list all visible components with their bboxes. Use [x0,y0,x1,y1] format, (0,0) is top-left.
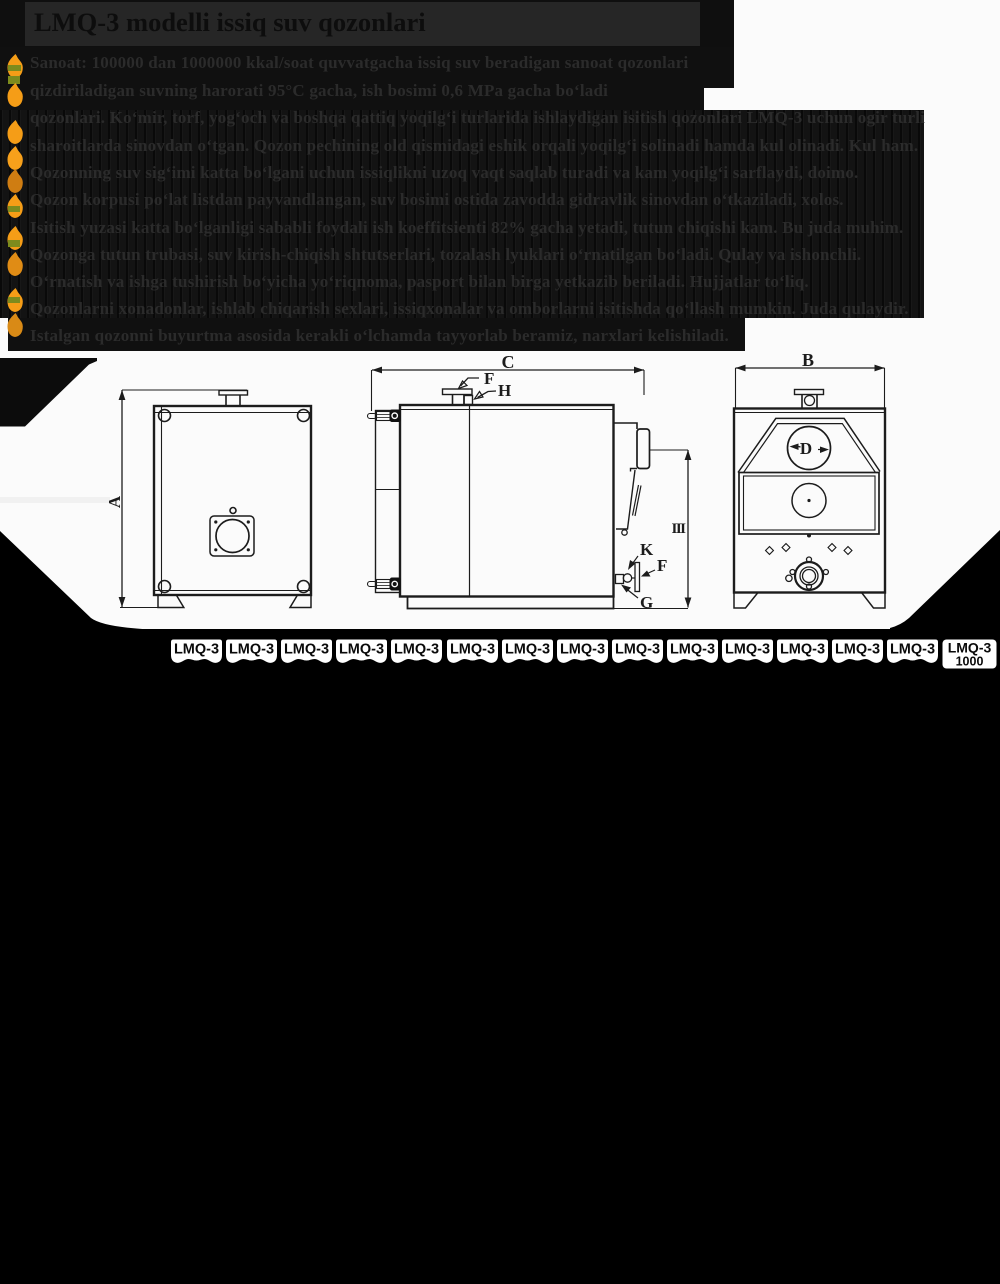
svg-text:LMQ-3: LMQ-3 [339,642,384,658]
svg-text:F: F [657,556,667,575]
svg-text:LMQ-3: LMQ-3 [394,642,439,658]
svg-text:LMQ-3: LMQ-3 [670,642,715,658]
svg-text:D: D [800,439,812,458]
svg-text:K: K [640,540,654,559]
svg-text:LMQ-3: LMQ-3 [560,642,605,658]
svg-text:LMQ-3: LMQ-3 [615,642,660,658]
svg-text:LMQ-3: LMQ-3 [505,642,550,658]
svg-text:LMQ-3: LMQ-3 [780,642,825,658]
svg-text:LMQ-3: LMQ-3 [725,642,770,658]
svg-text:III: III [671,521,686,537]
svg-text:1000: 1000 [955,655,983,669]
svg-text:C: C [502,352,515,372]
svg-text:LMQ-3: LMQ-3 [835,642,880,658]
svg-text:LMQ-3: LMQ-3 [284,642,329,658]
svg-text:G: G [640,593,653,612]
svg-text:A: A [105,495,124,508]
svg-text:F: F [484,369,494,388]
svg-text:LMQ-3: LMQ-3 [890,642,935,658]
svg-text:LMQ-3: LMQ-3 [947,640,991,656]
svg-text:H: H [498,381,511,400]
svg-text:B: B [802,351,814,370]
svg-text:LMQ-3: LMQ-3 [174,642,219,658]
svg-text:LMQ-3: LMQ-3 [449,642,494,658]
svg-text:LMQ-3: LMQ-3 [229,642,274,658]
